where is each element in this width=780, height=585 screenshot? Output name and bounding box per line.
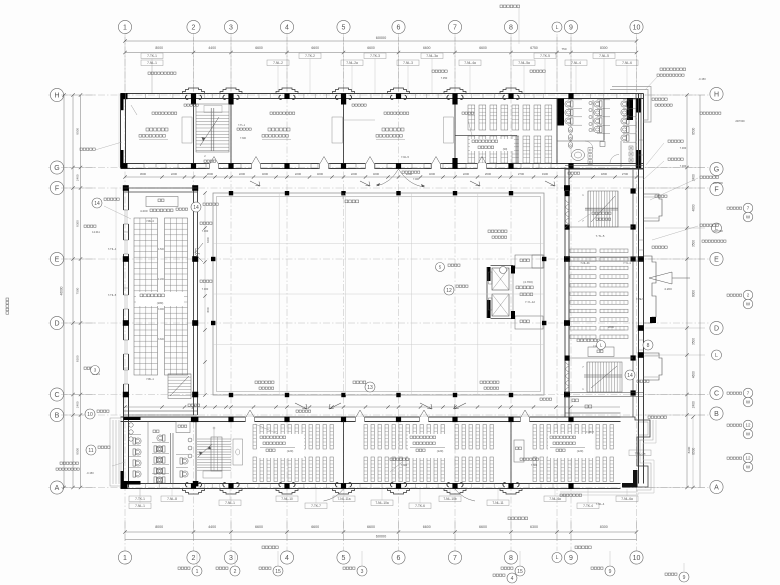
svg-text:15: 15 [517,569,523,575]
svg-text:7-NL-8: 7-NL-8 [167,497,177,501]
svg-text:3600: 3600 [140,172,147,176]
svg-text:2200: 2200 [171,172,178,176]
svg-text:7-NL-2: 7-NL-2 [273,61,283,65]
svg-text:1800: 1800 [601,172,608,176]
svg-text:12: 12 [745,423,751,428]
svg-text:(4.700): (4.700) [523,280,533,284]
svg-text:10: 10 [633,24,641,31]
svg-text:46000: 46000 [60,286,64,295]
svg-text:C: C [714,390,719,397]
svg-text:8500: 8500 [691,447,695,454]
svg-text:3200: 3200 [262,172,269,176]
svg-text:8: 8 [647,343,650,349]
svg-text:7-NL-4b: 7-NL-4b [580,261,590,265]
svg-text:1900: 1900 [542,172,549,176]
svg-text:4: 4 [285,24,289,31]
svg-text:7-TIL-5: 7-TIL-5 [108,293,117,297]
svg-text:2000: 2000 [207,172,214,176]
svg-text:3200: 3200 [429,172,436,176]
svg-text:7-NL-6a: 7-NL-6a [621,497,633,501]
svg-text:9: 9 [569,24,573,31]
svg-text:8500: 8500 [691,127,695,134]
svg-text:7-TK-2: 7-TK-2 [305,54,315,58]
svg-text:7-TK-1: 7-TK-1 [147,54,157,58]
svg-text:6600: 6600 [423,46,431,50]
svg-text:7-TK-3: 7-TK-3 [370,54,380,58]
svg-text:6600: 6600 [367,525,375,529]
svg-text:7-NL-3a: 7-NL-3a [426,54,438,58]
svg-text:H: H [54,93,59,100]
svg-text:7.300: 7.300 [240,137,247,140]
svg-text:2200: 2200 [351,172,358,176]
svg-text:1: 1 [123,555,127,562]
svg-text:4.200: 4.200 [140,209,148,213]
svg-text:8000: 8000 [692,290,696,297]
svg-text:2700: 2700 [518,172,525,176]
svg-text:7-YL-12: 7-YL-12 [525,300,535,304]
svg-text:2600: 2600 [485,172,492,176]
svg-text:4600: 4600 [692,371,696,378]
svg-text:8000: 8000 [155,46,163,50]
svg-text:6600: 6600 [367,46,375,50]
svg-text:7.300: 7.300 [202,229,209,233]
svg-text:4400: 4400 [208,525,216,529]
svg-text:11: 11 [88,448,93,454]
svg-text:7.300: 7.300 [401,464,408,467]
svg-text:6600: 6600 [255,525,263,529]
svg-text:5: 5 [342,24,346,31]
svg-text:8300: 8300 [600,46,608,50]
svg-text:7-NL-10: 7-NL-10 [281,497,293,501]
svg-text:10: 10 [87,412,93,418]
svg-text:7-NL-11a: 7-NL-11a [337,497,350,501]
svg-text:2800: 2800 [608,325,615,329]
svg-text:7: 7 [453,24,457,31]
svg-text:6: 6 [397,24,401,31]
svg-text:G: G [714,166,719,173]
svg-text:E: E [55,256,60,263]
svg-text:10: 10 [633,555,641,562]
svg-text:L: L [715,353,718,359]
svg-text:14: 14 [627,373,633,379]
svg-text:D: D [714,325,719,332]
svg-text:15: 15 [275,569,281,575]
svg-text:6600: 6600 [255,46,263,50]
svg-text:7-BL-3: 7-BL-3 [146,219,154,223]
svg-text:1: 1 [123,24,127,31]
svg-text:F: F [714,186,718,193]
svg-text:7: 7 [453,555,457,562]
svg-text:7-TL-1: 7-TL-1 [238,124,246,127]
svg-text:-0.150: -0.150 [86,471,94,475]
svg-text:7.300: 7.300 [531,464,538,467]
svg-text:2700: 2700 [622,172,629,176]
svg-text:7-NL-1: 7-NL-1 [147,61,157,65]
svg-text:2200: 2200 [295,172,302,176]
svg-text:(180): (180) [157,301,164,305]
svg-text:7.300: 7.300 [202,287,209,291]
svg-text:60000: 60000 [376,36,387,40]
svg-text:6600: 6600 [479,525,487,529]
svg-text:7-BL-1: 7-BL-1 [146,377,154,381]
svg-text:2: 2 [234,569,237,575]
svg-text:7-NL-4a: 7-NL-4a [549,497,561,501]
svg-text:(30): (30) [503,147,508,151]
svg-text:7-NL-1: 7-NL-1 [225,501,235,505]
svg-text:H: H [714,92,719,99]
svg-text:4.200: 4.200 [158,278,165,281]
svg-text:8500: 8500 [75,128,79,135]
svg-text:8300: 8300 [76,220,80,227]
svg-text:12: 12 [745,456,751,461]
svg-text:(120): (120) [577,449,584,453]
svg-text:2400: 2400 [76,401,80,408]
svg-text:C: C [54,392,59,399]
svg-text:(120): (120) [437,449,444,453]
svg-text:3.600: 3.600 [158,338,165,341]
svg-text:60000: 60000 [376,535,387,539]
svg-text:2: 2 [192,24,196,31]
svg-text:7-TE-5: 7-TE-5 [636,297,644,301]
svg-text:L: L [556,25,559,31]
svg-text:7-TK-6: 7-TK-6 [415,504,425,508]
svg-text:F: F [55,185,59,192]
svg-text:8300: 8300 [76,355,80,362]
svg-text:12: 12 [446,288,452,294]
svg-text:6300: 6300 [530,525,538,529]
svg-text:8000: 8000 [155,525,163,529]
svg-text:3200: 3200 [317,172,324,176]
svg-text:7-NL-11: 7-NL-11 [492,501,504,505]
svg-text:9: 9 [609,569,612,575]
svg-text:7500: 7500 [76,287,80,294]
svg-text:750: 750 [561,47,566,51]
svg-text:G: G [54,165,59,172]
svg-text:2400: 2400 [76,174,80,181]
svg-text:7-NL-10b: 7-NL-10b [443,497,457,501]
svg-text:13: 13 [367,385,373,391]
svg-text:2400: 2400 [692,401,696,408]
svg-text:7.350: 7.350 [441,76,448,80]
svg-text:6600: 6600 [423,525,431,529]
svg-text:6: 6 [397,555,401,562]
svg-text:7-NL-4: 7-NL-4 [596,502,605,506]
svg-text:7-NL-5: 7-NL-5 [599,54,609,58]
svg-text:7-NL-6: 7-NL-6 [622,61,632,65]
svg-text:3: 3 [361,569,364,575]
svg-text:3500: 3500 [692,240,696,247]
svg-text:6750: 6750 [530,46,538,50]
svg-text:12.011: 12.011 [92,230,100,234]
svg-text:2200: 2200 [239,172,246,176]
svg-text:3200: 3200 [373,172,380,176]
svg-text:2: 2 [192,555,196,562]
svg-text:14: 14 [193,205,199,211]
svg-text:7-NL-?: 7-NL-? [586,430,594,434]
svg-text:7-NL-10a: 7-NL-10a [375,501,389,505]
svg-text:B: B [55,412,60,419]
svg-text:7-TK-7: 7-TK-7 [311,504,321,508]
svg-text:5: 5 [342,555,346,562]
svg-text:1: 1 [196,569,199,575]
svg-text:3: 3 [229,555,233,562]
svg-text:7-NL-2a: 7-NL-2a [346,61,358,65]
svg-text:7-NL-4a: 7-NL-4a [464,61,476,65]
svg-text:7.300: 7.300 [680,146,687,150]
svg-text:7-NL-3: 7-NL-3 [403,61,413,65]
svg-text:8: 8 [509,555,513,562]
svg-text:7-TIL-4: 7-TIL-4 [108,247,117,251]
svg-text:4: 4 [511,576,514,582]
svg-text:3: 3 [229,24,233,31]
svg-text:2200: 2200 [406,172,413,176]
svg-text:7-TL-5: 7-TL-5 [596,234,605,238]
svg-text:4500: 4500 [206,307,210,313]
svg-text:7-NL-1: 7-NL-1 [135,504,145,508]
svg-text:3500: 3500 [692,338,696,345]
svg-text:3.900: 3.900 [158,308,165,311]
svg-text:7-YL-1: 7-YL-1 [623,261,631,265]
svg-text:6600: 6600 [311,525,319,529]
svg-text:6600: 6600 [311,46,319,50]
svg-text:6600: 6600 [479,46,487,50]
svg-text:200*200: 200*200 [713,229,723,233]
svg-text:4400: 4400 [208,46,216,50]
svg-text:14: 14 [94,201,100,207]
svg-text:7-TK-4: 7-TK-4 [583,504,593,508]
svg-text:A: A [714,484,719,491]
svg-text:2200: 2200 [463,172,470,176]
svg-text:L: L [556,555,559,561]
svg-text:8300: 8300 [600,525,608,529]
svg-text:-0.150: -0.150 [698,77,706,81]
svg-text:9: 9 [683,575,686,581]
svg-text:4600: 4600 [692,204,696,211]
svg-text:4.200: 4.200 [664,287,672,291]
svg-text:(120): (120) [287,449,294,453]
svg-text:7-TK-5: 7-TK-5 [540,54,550,58]
svg-text:6400: 6400 [206,237,210,243]
svg-text:7-NL-5: 7-NL-5 [401,155,409,159]
svg-text:4: 4 [285,555,289,562]
svg-text:9: 9 [569,555,573,562]
svg-text:7-NL-4: 7-NL-4 [571,61,581,65]
svg-text:4.500: 4.500 [158,248,165,251]
svg-text:8500: 8500 [75,448,79,455]
svg-text:7-NL-5a: 7-NL-5a [518,61,530,65]
svg-text:B: B [714,411,719,418]
svg-text:8: 8 [509,24,513,31]
svg-text:A: A [55,485,60,492]
svg-text:200*200: 200*200 [713,181,723,185]
svg-text:E: E [714,256,719,263]
svg-text:8200: 8200 [687,446,691,453]
svg-text:200*200: 200*200 [735,120,745,123]
svg-text:D: D [54,320,59,327]
svg-text:7.300: 7.300 [680,164,687,168]
